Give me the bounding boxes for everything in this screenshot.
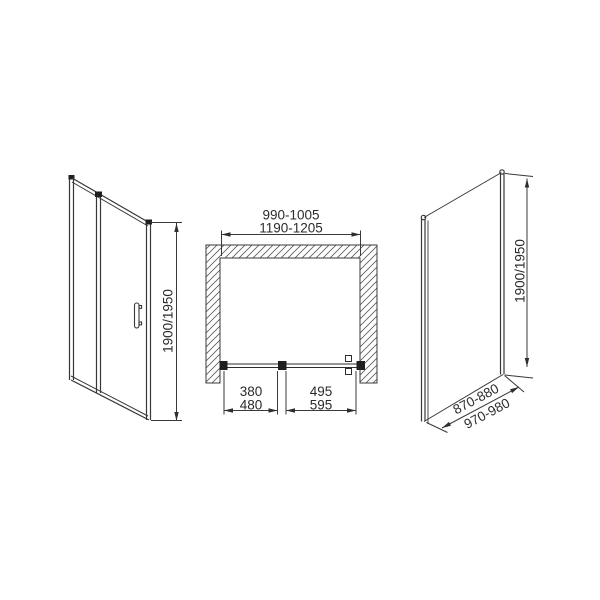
plan-right-seg-bottom-label: 595 xyxy=(310,398,333,413)
front-height-label: 1900/1950 xyxy=(161,289,176,353)
drawing-canvas: 1900/1950 990-1005 1190-1205 xyxy=(0,0,600,600)
background xyxy=(0,0,600,600)
plan-outer-width-label: 1190-1205 xyxy=(259,221,323,236)
plan-center-connector xyxy=(278,361,287,370)
plan-left-seg-bottom-label: 480 xyxy=(240,398,263,413)
front-hinge-cap xyxy=(95,192,102,198)
side-left-post-cap xyxy=(421,215,425,219)
side-height-label: 1900/1950 xyxy=(513,239,528,303)
plan-wall-profile-right xyxy=(357,361,366,370)
technical-drawing-page: 1900/1950 990-1005 1190-1205 xyxy=(0,0,600,600)
plan-wall-profile-left xyxy=(220,361,228,370)
